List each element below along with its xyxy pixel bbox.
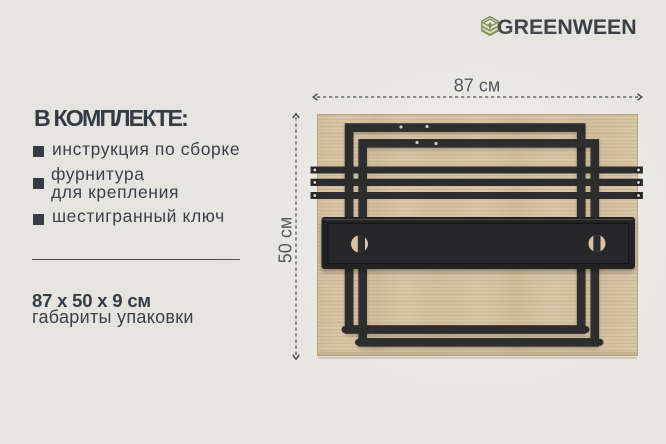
svg-text:50 см: 50 см [276, 217, 296, 263]
svg-text:87 см: 87 см [454, 76, 500, 96]
